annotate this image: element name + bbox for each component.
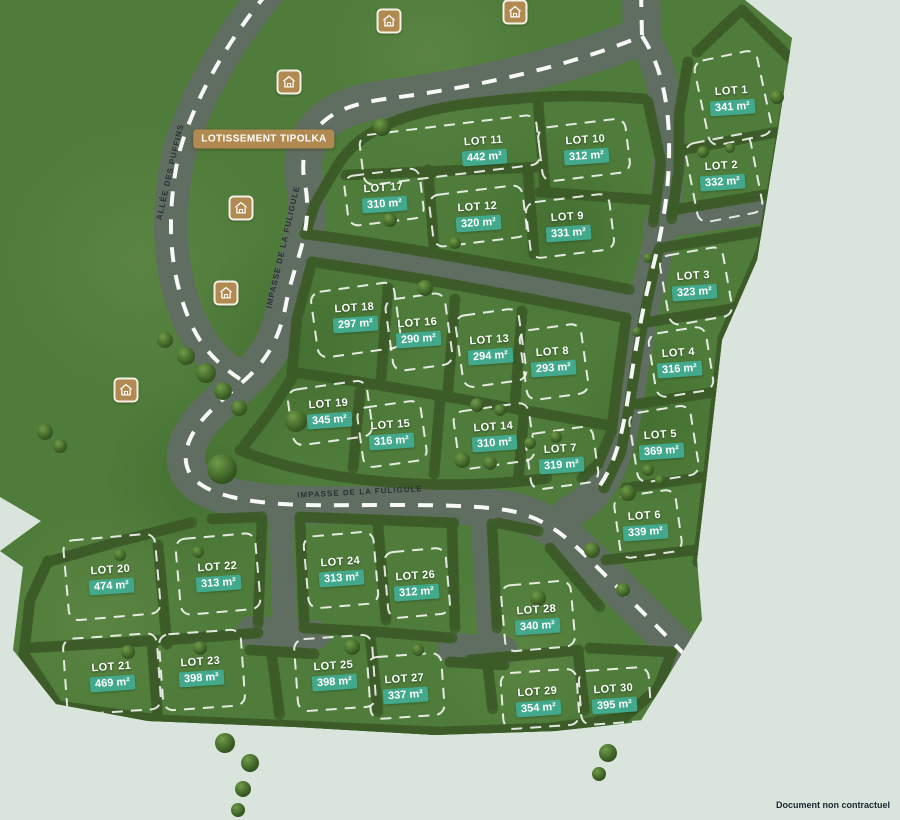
lot-area-badge: 474 m²: [89, 577, 135, 595]
lot-number: LOT 13: [467, 332, 513, 347]
lot-area-badge: 316 m²: [369, 432, 415, 450]
lot-label: LOT 7319 m²: [538, 441, 585, 474]
tree: [643, 253, 653, 263]
lot-area-badge: 323 m²: [672, 283, 718, 301]
lot-number: LOT 25: [311, 658, 357, 673]
lot-number: LOT 17: [361, 180, 407, 195]
tree: [412, 644, 424, 656]
tree: [592, 767, 606, 781]
lot-number: LOT 8: [530, 344, 576, 359]
tree: [231, 803, 245, 817]
house-icon: [229, 196, 254, 221]
lot-label: LOT 26312 m²: [393, 568, 440, 601]
lot-area-badge: 339 m²: [623, 523, 669, 541]
tree: [53, 439, 67, 453]
lot-area-badge: 398 m²: [312, 673, 358, 691]
lot-label: LOT 21469 m²: [89, 659, 136, 692]
lot-number: LOT 1: [709, 83, 755, 98]
lot-area-badge: 332 m²: [700, 173, 746, 191]
tree: [285, 410, 307, 432]
lot-area-badge: 337 m²: [383, 686, 429, 704]
lot-label: LOT 22313 m²: [195, 559, 242, 592]
tree: [177, 347, 195, 365]
lot-area-badge: 331 m²: [546, 224, 592, 242]
lot-area-badge: 313 m²: [196, 574, 242, 592]
lot-area-badge: 354 m²: [516, 699, 562, 717]
lot-label: LOT 12320 m²: [455, 199, 502, 232]
lot-label: LOT 17310 m²: [361, 180, 408, 213]
lot-number: LOT 6: [622, 508, 668, 523]
lot-label: LOT 20474 m²: [88, 562, 135, 595]
lot-label: LOT 4316 m²: [656, 345, 703, 378]
lot-number: LOT 30: [591, 681, 637, 696]
lot-number: LOT 3: [671, 268, 717, 283]
tree: [524, 437, 536, 449]
lot-area-badge: 313 m²: [319, 569, 365, 587]
house-icon: [377, 9, 402, 34]
lot-label: LOT 28340 m²: [514, 602, 561, 635]
tree: [241, 754, 259, 772]
lot-label: LOT 25398 m²: [311, 658, 358, 691]
tree: [632, 327, 642, 337]
lot-number: LOT 16: [395, 315, 441, 330]
tree: [655, 475, 665, 485]
tree: [550, 431, 562, 443]
tree: [157, 332, 173, 348]
tree: [470, 398, 484, 412]
lot-area-badge: 310 m²: [362, 195, 408, 213]
lot-number: LOT 28: [514, 602, 560, 617]
lot-area-badge: 345 m²: [307, 411, 353, 429]
lot-number: LOT 9: [545, 209, 591, 224]
lot-number: LOT 2: [699, 158, 745, 173]
lot-number: LOT 19: [306, 396, 352, 411]
lot-label: LOT 30395 m²: [591, 681, 638, 714]
lot-number: LOT 24: [318, 554, 364, 569]
lot-area-badge: 469 m²: [90, 674, 136, 692]
map-canvas: [0, 0, 900, 820]
lot-area-badge: 290 m²: [396, 330, 442, 348]
lot-label: LOT 11442 m²: [461, 133, 508, 166]
lot-number: LOT 14: [471, 419, 517, 434]
tree: [616, 583, 630, 597]
lot-area-badge: 319 m²: [539, 456, 585, 474]
tree: [483, 456, 497, 470]
lot-label: LOT 27337 m²: [382, 671, 429, 704]
tree: [344, 639, 360, 655]
lot-label: LOT 1341 m²: [709, 83, 756, 116]
house-icon: [114, 378, 139, 403]
tree: [620, 485, 636, 501]
house-icon: [277, 70, 302, 95]
tree: [770, 90, 784, 104]
site-plan-map: LOTISSEMENT TIPOLKA ALLÉE DES PUFFINSIMP…: [0, 0, 900, 820]
lot-label: LOT 9331 m²: [545, 209, 592, 242]
lot-area-badge: 312 m²: [394, 583, 440, 601]
tree: [235, 781, 251, 797]
tree: [193, 641, 207, 655]
tree: [584, 542, 600, 558]
lot-number: LOT 22: [195, 559, 241, 574]
lot-label: LOT 16290 m²: [395, 315, 442, 348]
lot-number: LOT 4: [656, 345, 702, 360]
lot-area-badge: 310 m²: [472, 434, 518, 452]
lot-number: LOT 15: [368, 417, 414, 432]
lot-label: LOT 5369 m²: [638, 427, 685, 460]
tree: [697, 146, 709, 158]
title-banner: LOTISSEMENT TIPOLKA: [193, 130, 334, 149]
lot-area-badge: 316 m²: [657, 360, 703, 378]
tree: [37, 424, 53, 440]
tree: [207, 454, 237, 484]
tree: [196, 363, 216, 383]
lot-number: LOT 11: [461, 133, 507, 148]
lot-number: LOT 26: [393, 568, 439, 583]
lot-label: LOT 18297 m²: [332, 300, 379, 333]
lot-area-badge: 395 m²: [592, 696, 638, 714]
lot-number: LOT 27: [382, 671, 428, 686]
tree: [417, 280, 433, 296]
tree: [449, 237, 461, 249]
tree: [725, 143, 735, 153]
lot-label: LOT 8293 m²: [530, 344, 577, 377]
tree: [114, 549, 126, 561]
tree: [642, 464, 654, 476]
lot-area-badge: 340 m²: [515, 617, 561, 635]
lot-number: LOT 21: [89, 659, 135, 674]
lot-label: LOT 14310 m²: [471, 419, 518, 452]
tree: [383, 213, 397, 227]
house-icon: [503, 0, 528, 25]
tree: [454, 452, 470, 468]
lot-area-badge: 320 m²: [456, 214, 502, 232]
lot-label: LOT 23398 m²: [178, 654, 225, 687]
lot-area-badge: 293 m²: [531, 359, 577, 377]
lot-label: LOT 29354 m²: [515, 684, 562, 717]
tree: [231, 400, 247, 416]
lot-label: LOT 6339 m²: [622, 508, 669, 541]
lot-number: LOT 20: [88, 562, 134, 577]
lot-area-badge: 294 m²: [468, 347, 514, 365]
lot-area-badge: 312 m²: [564, 147, 610, 165]
disclaimer-text: Document non contractuel: [776, 800, 890, 810]
lot-label: LOT 19345 m²: [306, 396, 353, 429]
tree: [192, 546, 204, 558]
lot-number: LOT 5: [638, 427, 684, 442]
tree: [599, 744, 617, 762]
lot-label: LOT 10312 m²: [563, 132, 610, 165]
lot-label: LOT 15316 m²: [368, 417, 415, 450]
lot-area-badge: 442 m²: [462, 148, 508, 166]
lot-number: LOT 12: [455, 199, 501, 214]
house-icon: [214, 281, 239, 306]
lot-number: LOT 10: [563, 132, 609, 147]
lot-label: LOT 3323 m²: [671, 268, 718, 301]
lot-area-badge: 369 m²: [639, 442, 685, 460]
tree: [494, 404, 506, 416]
lot-number: LOT 23: [178, 654, 224, 669]
lot-number: LOT 29: [515, 684, 561, 699]
lot-label: LOT 24313 m²: [318, 554, 365, 587]
tree: [121, 645, 135, 659]
tree: [373, 118, 391, 136]
tree: [215, 733, 235, 753]
tree: [214, 382, 232, 400]
lot-number: LOT 18: [332, 300, 378, 315]
lot-area-badge: 341 m²: [710, 98, 756, 116]
lot-area-badge: 297 m²: [333, 315, 379, 333]
lot-label: LOT 13294 m²: [467, 332, 514, 365]
lot-label: LOT 2332 m²: [699, 158, 746, 191]
lot-area-badge: 398 m²: [179, 669, 225, 687]
lot-number: LOT 7: [538, 441, 584, 456]
grass-texture: [0, 0, 900, 820]
map-ground: [0, 0, 900, 820]
